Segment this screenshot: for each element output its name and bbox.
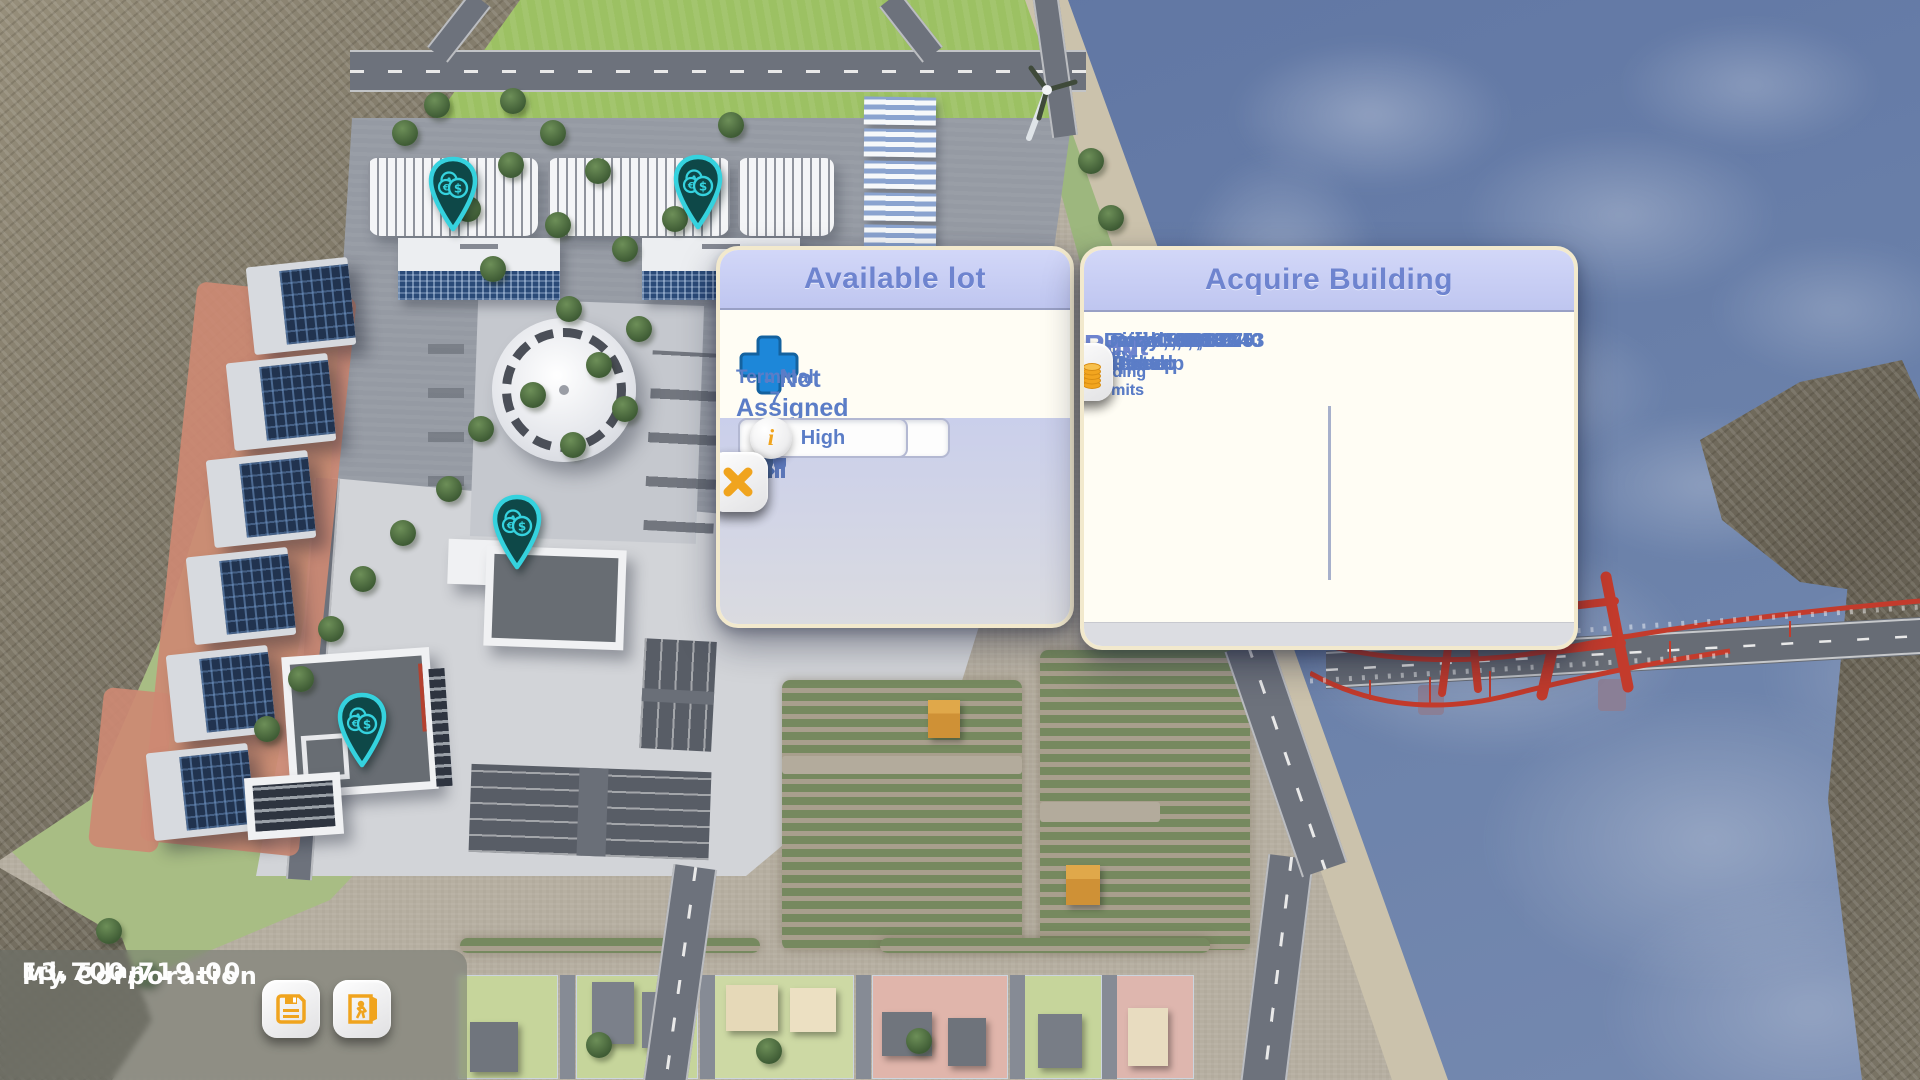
tree xyxy=(254,716,280,742)
game-date: Fri, 5 Jan xyxy=(22,959,147,983)
tree xyxy=(468,416,494,442)
highway xyxy=(350,50,1086,92)
wind-turbine xyxy=(1005,60,1085,150)
svg-text:$: $ xyxy=(454,182,462,196)
save-button[interactable] xyxy=(262,980,320,1038)
tree xyxy=(540,120,566,146)
tree xyxy=(96,918,122,944)
lot-assignment-section: - Not Assigned - Terminal 7 xyxy=(720,312,1070,418)
tree xyxy=(350,566,376,592)
parking-lot xyxy=(469,764,712,860)
house xyxy=(726,985,778,1031)
svg-text:$: $ xyxy=(699,180,707,194)
exit-icon xyxy=(344,991,380,1027)
glass-tower xyxy=(146,743,257,841)
game-viewport: A € $ A € $ A € $ A € $ Available lot - … xyxy=(0,0,1920,1080)
house xyxy=(790,988,836,1032)
coins-icon xyxy=(1080,354,1104,390)
striped-roof xyxy=(864,96,936,125)
apron-markings xyxy=(643,350,722,533)
crop-field xyxy=(1040,650,1250,950)
glass-tower xyxy=(186,547,297,645)
save-icon xyxy=(273,991,309,1027)
money-pin-icon[interactable]: A € $ xyxy=(492,494,542,572)
tree xyxy=(390,520,416,546)
tree xyxy=(906,1028,932,1054)
lot-road xyxy=(1102,975,1117,1079)
tree xyxy=(626,316,652,342)
crop-field xyxy=(880,938,1210,953)
rent-button[interactable] xyxy=(1080,343,1113,401)
lot-road xyxy=(700,975,715,1079)
tree xyxy=(545,212,571,238)
parking-lot xyxy=(639,638,717,752)
available-lot-panel: Available lot - Not Assigned - Terminal … xyxy=(716,246,1074,628)
svg-text:$: $ xyxy=(518,520,526,534)
barn xyxy=(1066,865,1100,905)
tree xyxy=(756,1038,782,1064)
tree xyxy=(585,158,611,184)
tree xyxy=(480,256,506,282)
available-lot-header: Available lot xyxy=(720,250,1070,310)
tree xyxy=(392,120,418,146)
money-pin-icon[interactable]: A € $ xyxy=(673,154,723,232)
acquire-building-panel: Acquire Building Buy Initial Price 186,1… xyxy=(1080,246,1578,650)
exit-button[interactable] xyxy=(333,980,391,1038)
money-pin-icon[interactable]: A € $ xyxy=(428,156,478,234)
solar-panels xyxy=(252,780,335,831)
tree xyxy=(318,616,344,642)
lot-details-section: 48 m2 High i xyxy=(720,418,1070,624)
tree xyxy=(520,382,546,408)
panel-title: Available lot xyxy=(804,262,986,296)
tree xyxy=(556,296,582,322)
panel-footer-strip xyxy=(1084,622,1574,646)
tree xyxy=(498,152,524,178)
glass-tower xyxy=(226,353,337,451)
glass-facade xyxy=(219,554,296,635)
lot-road xyxy=(856,975,871,1079)
tree xyxy=(436,476,462,502)
tree xyxy=(718,112,744,138)
tree xyxy=(1078,148,1104,174)
barn xyxy=(928,700,960,738)
acquire-building-header: Acquire Building xyxy=(1084,250,1574,312)
tree xyxy=(586,1032,612,1058)
striped-roof xyxy=(864,128,936,157)
tree xyxy=(560,432,586,458)
terminal-entrance xyxy=(398,238,560,300)
glass-facade xyxy=(279,264,356,345)
terminal-building xyxy=(738,158,834,236)
glass-tower xyxy=(206,450,317,548)
cloud-reflection xyxy=(1620,20,1880,150)
info-icon: i xyxy=(768,425,774,450)
column-divider xyxy=(1328,406,1331,580)
tree xyxy=(586,352,612,378)
close-button[interactable] xyxy=(716,452,768,512)
tree xyxy=(1098,205,1124,231)
lot-road xyxy=(1010,975,1025,1079)
lot-road xyxy=(560,975,575,1079)
apron-markings xyxy=(428,336,464,486)
glass-facade xyxy=(239,457,316,538)
svg-text:$: $ xyxy=(363,718,371,732)
lot-terminal: Terminal 7 xyxy=(736,367,814,411)
striped-roof xyxy=(864,192,936,221)
field-gap xyxy=(782,756,1022,774)
field-gap xyxy=(1040,802,1160,822)
house xyxy=(948,1018,986,1066)
tree xyxy=(612,236,638,262)
acquire-options: Buy Initial Price 186,152.53 Daily Renta… xyxy=(1084,314,1574,622)
house xyxy=(470,1022,518,1072)
crop-field xyxy=(782,680,1022,950)
panel-title: Acquire Building xyxy=(1205,263,1453,297)
solar-wing xyxy=(244,772,344,841)
house xyxy=(1038,1014,1082,1068)
striped-roof xyxy=(864,160,936,189)
row-value: 8,980.37 xyxy=(1152,330,1230,376)
tree xyxy=(612,396,638,422)
close-icon xyxy=(720,464,756,500)
glass-facade xyxy=(259,360,336,441)
house xyxy=(1128,1008,1168,1066)
tree xyxy=(500,88,526,114)
glass-tower xyxy=(246,257,357,355)
tree xyxy=(424,92,450,118)
tree xyxy=(288,666,314,692)
money-pin-icon[interactable]: A € $ xyxy=(337,692,387,770)
corporation-hud: My Corporation 13,700,719.00 Fri, 5 Jan xyxy=(0,950,467,1080)
crop-field xyxy=(460,938,760,953)
